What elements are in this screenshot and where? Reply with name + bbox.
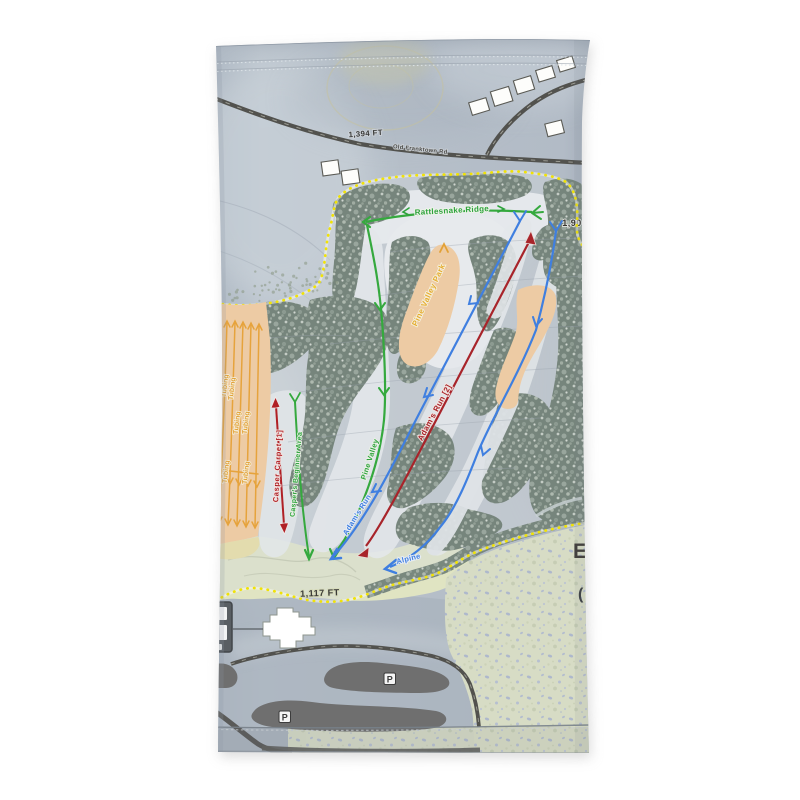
svg-text:P: P bbox=[387, 675, 393, 685]
svg-text:1,117 FT: 1,117 FT bbox=[300, 587, 340, 598]
svg-text:P: P bbox=[282, 713, 288, 723]
